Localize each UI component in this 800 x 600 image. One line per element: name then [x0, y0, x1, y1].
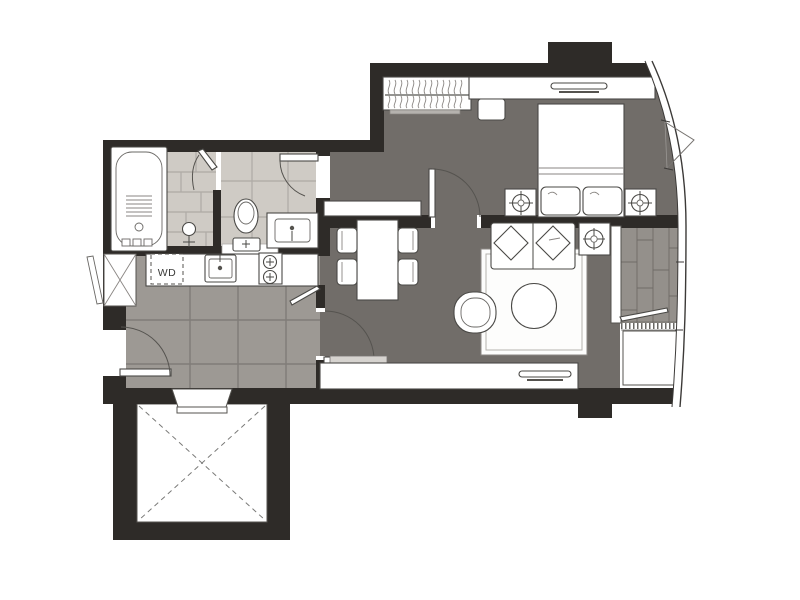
dining-chair [337, 228, 357, 253]
balcony-glass-door [611, 226, 621, 323]
dining-table [357, 220, 398, 300]
tv-bench-living [320, 363, 578, 389]
nightstand-right [625, 189, 656, 216]
dining-chair [398, 259, 418, 285]
wall-shelf [330, 356, 387, 363]
pillow [541, 187, 580, 215]
stool [478, 99, 505, 120]
floor-plan-canvas: WD [0, 0, 800, 600]
vanity-sink [267, 213, 318, 248]
tv [551, 83, 607, 89]
side-table [579, 223, 610, 255]
nightstand-left [505, 189, 536, 216]
bathtub [111, 147, 167, 251]
chimney-block [548, 42, 612, 77]
stove-two-burner [259, 253, 282, 284]
dining-chair [337, 259, 357, 285]
pillow [583, 187, 622, 215]
closet-shelf [390, 110, 460, 114]
washer-dryer: WD [151, 254, 183, 284]
ac-unit [623, 331, 680, 385]
floor-plan-page: WD [0, 0, 800, 600]
hall-console [324, 201, 421, 216]
dining-chair [398, 228, 418, 253]
kitchen-sink [205, 255, 236, 282]
balcony-deck [621, 228, 685, 323]
sofa [491, 223, 575, 269]
shaft-vent [172, 389, 232, 413]
tv [519, 371, 571, 377]
wardrobe [383, 77, 471, 114]
double-bed [538, 104, 624, 217]
coffee-table [512, 284, 557, 329]
washer-dryer-label: WD [158, 267, 177, 279]
armchair [454, 292, 496, 333]
